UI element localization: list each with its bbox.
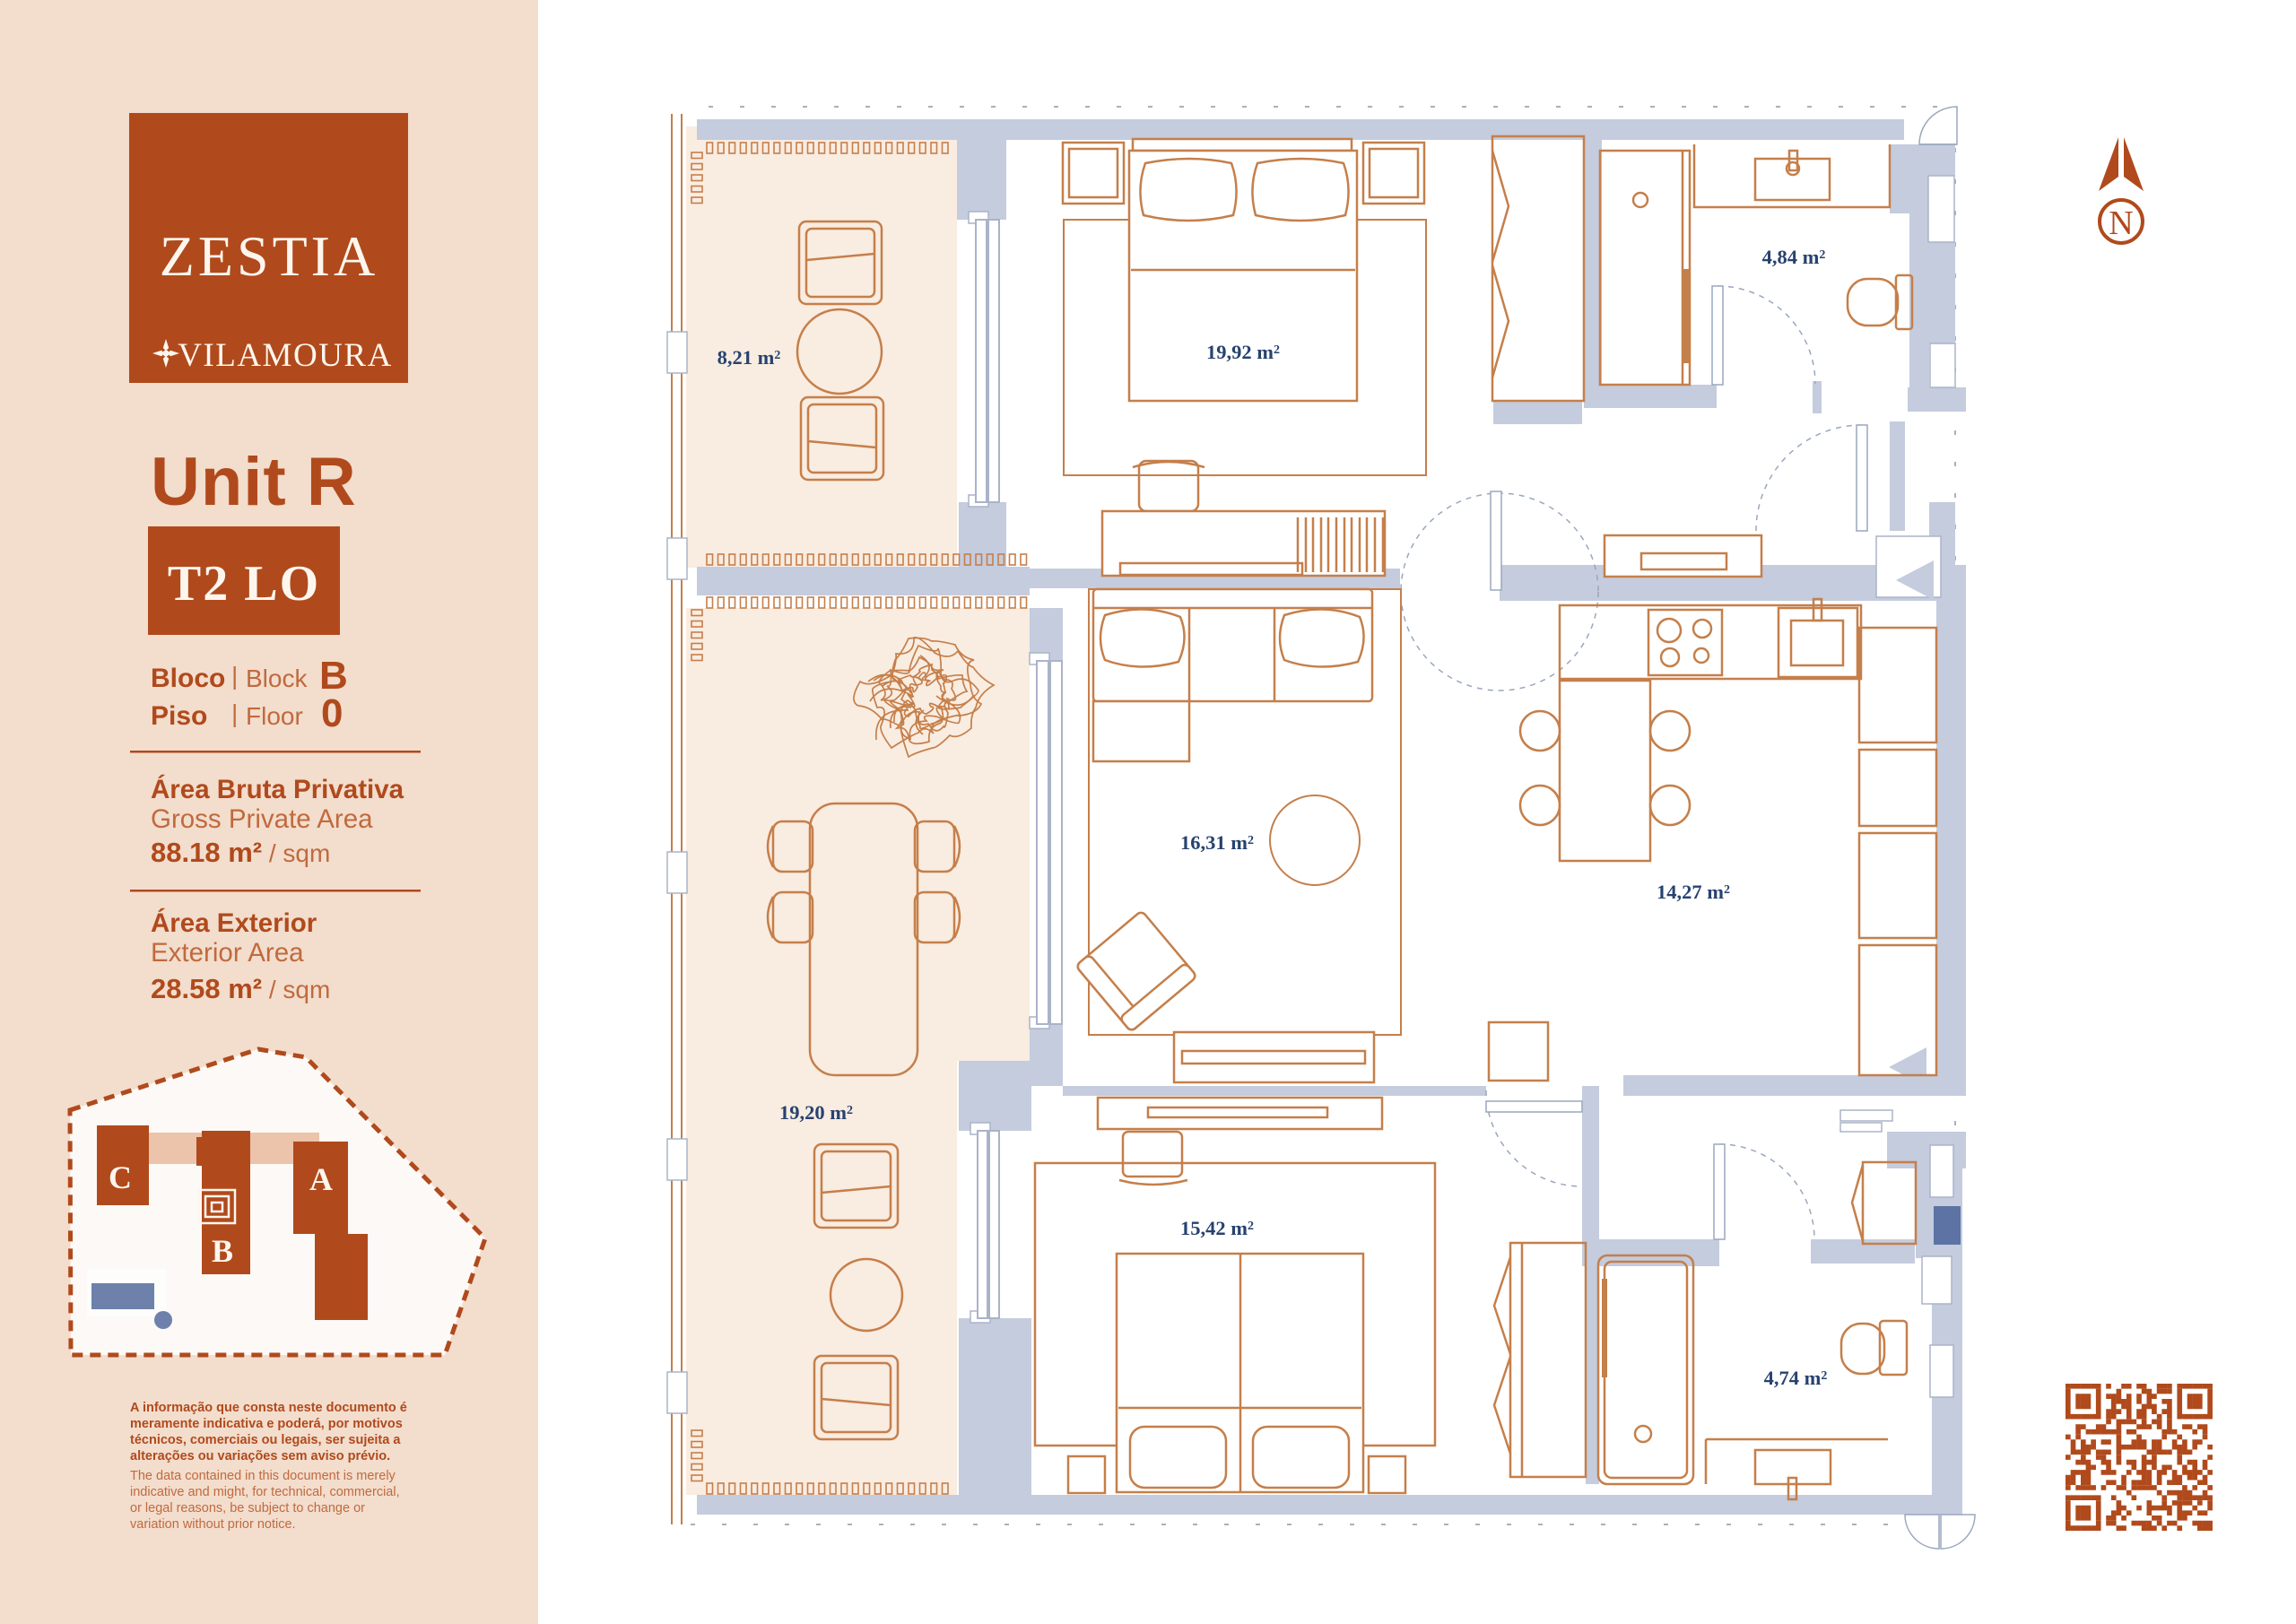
svg-text:Área Exterior: Área Exterior bbox=[151, 908, 317, 938]
svg-text:Unit R: Unit R bbox=[151, 444, 357, 520]
svg-text:meramente indicativa e poderá,: meramente indicativa e poderá, por motiv… bbox=[130, 1417, 403, 1431]
svg-text:Floor: Floor bbox=[246, 702, 303, 730]
svg-text:|: | bbox=[231, 662, 238, 690]
svg-text:T2 LO: T2 LO bbox=[168, 556, 320, 612]
svg-text:Piso: Piso bbox=[151, 701, 207, 731]
svg-text:Área Bruta Privativa: Área Bruta Privativa bbox=[151, 774, 404, 804]
svg-text:alterações ou variações sem av: alterações ou variações sem aviso prévio… bbox=[130, 1449, 390, 1463]
svg-text:88.18 m² / sqm: 88.18 m² / sqm bbox=[151, 837, 330, 868]
svg-text:The data contained in this doc: The data contained in this document is m… bbox=[130, 1469, 396, 1483]
svg-text:Bloco: Bloco bbox=[151, 664, 225, 693]
svg-text:15,42 m2: 15,42 m2 bbox=[1180, 1217, 1254, 1239]
svg-text:N: N bbox=[2109, 204, 2133, 242]
svg-text:variation without prior notice: variation without prior notice. bbox=[130, 1517, 296, 1532]
svg-text:Exterior Area: Exterior Area bbox=[151, 938, 304, 968]
svg-text:Gross Private Area: Gross Private Area bbox=[151, 804, 373, 834]
svg-text:4,84 m2: 4,84 m2 bbox=[1762, 246, 1826, 268]
svg-text:16,31 m2: 16,31 m2 bbox=[1180, 831, 1254, 854]
svg-text:or legal reasons, be subject t: or legal reasons, be subject to change o… bbox=[130, 1501, 365, 1515]
svg-text:A: A bbox=[309, 1161, 333, 1197]
svg-text:A informação que consta neste: A informação que consta neste documento … bbox=[130, 1401, 407, 1415]
svg-text:Block: Block bbox=[246, 664, 308, 692]
svg-text:19,92 m2: 19,92 m2 bbox=[1206, 341, 1280, 363]
svg-text:B: B bbox=[212, 1233, 233, 1269]
svg-text:indicative and might, for tech: indicative and might, for technical, com… bbox=[130, 1485, 400, 1499]
svg-text:28.58 m² / sqm: 28.58 m² / sqm bbox=[151, 973, 330, 1004]
svg-text:19,20 m2: 19,20 m2 bbox=[779, 1101, 853, 1124]
svg-text:ZESTIA: ZESTIA bbox=[160, 224, 378, 288]
svg-text:8,21 m2: 8,21 m2 bbox=[717, 346, 781, 369]
svg-text:técnicos, comerciais ou legais: técnicos, comerciais ou legais, ser suje… bbox=[130, 1433, 401, 1447]
svg-text:0: 0 bbox=[321, 691, 343, 735]
svg-text:14,27 m2: 14,27 m2 bbox=[1657, 881, 1730, 903]
svg-text:VILAMOURA: VILAMOURA bbox=[178, 337, 393, 374]
svg-text:C: C bbox=[109, 1159, 132, 1195]
svg-text:|: | bbox=[231, 699, 238, 727]
svg-text:4,74 m2: 4,74 m2 bbox=[1764, 1367, 1828, 1389]
